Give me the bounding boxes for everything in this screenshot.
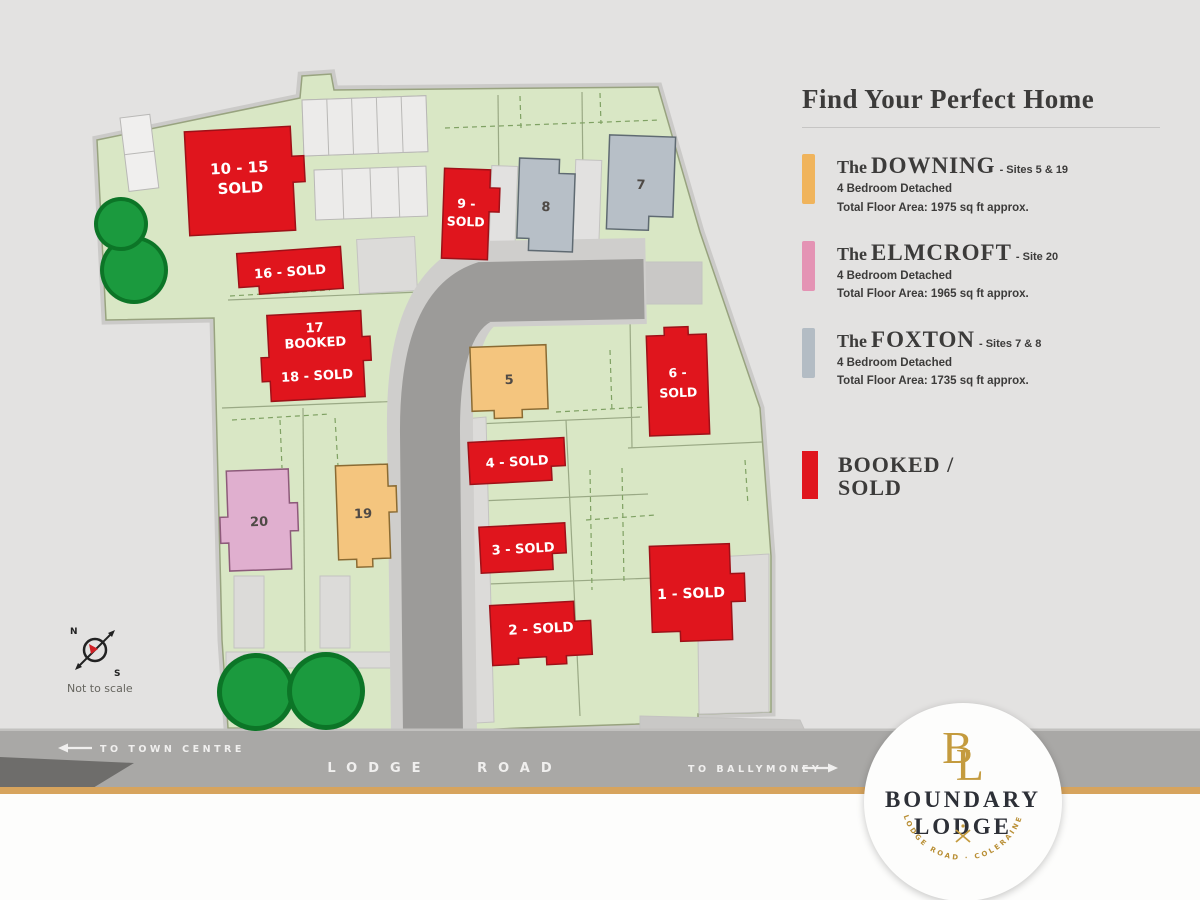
house-name: FOXTON (871, 327, 975, 352)
plot-label: 9 - (457, 196, 476, 212)
house-sites: - Sites 7 & 8 (979, 338, 1041, 350)
legend-item-foxton: The FOXTON - Sites 7 & 8 4 Bedroom Detac… (802, 328, 1164, 389)
tree (94, 197, 148, 251)
house-sites: - Site 20 (1016, 251, 1058, 263)
house-name-prefix: The (837, 244, 867, 264)
plot-6-house[interactable]: 6 - SOLD (646, 326, 710, 436)
svg-text:LODGE ROAD · COLERAINE: LODGE ROAD · COLERAINE (902, 814, 1025, 862)
plot-label: 20 (250, 515, 269, 531)
plot-label: 2 - SOLD (508, 619, 574, 638)
to-ballymoney-label: TO BALLYMONEY (688, 764, 822, 775)
plot-label: 19 (354, 507, 373, 523)
legend-item-elmcroft: The ELMCROFT - Site 20 4 Bedroom Detache… (802, 241, 1164, 302)
legend-item-downing: The DOWNING - Sites 5 & 19 4 Bedroom Det… (802, 154, 1164, 215)
house-area: Total Floor Area: 1735 sq ft approx. (837, 374, 1041, 388)
tree (287, 652, 365, 730)
legend-divider (802, 127, 1160, 128)
plot-label: SOLD (446, 213, 484, 229)
house-name-prefix: The (837, 157, 867, 177)
plot-label: 7 (636, 178, 646, 193)
house-area: Total Floor Area: 1965 sq ft approx. (837, 287, 1058, 301)
plot-label: 8 (541, 200, 551, 215)
plot-label: 5 (504, 373, 514, 388)
house-type-name: The ELMCROFT - Site 20 (837, 241, 1058, 265)
plot-4-house[interactable]: 4 - SOLD (468, 438, 566, 485)
house-type-name: The FOXTON - Sites 7 & 8 (837, 328, 1041, 352)
foxton-color-swatch (802, 328, 815, 378)
legend-title: Find Your Perfect Home (802, 84, 1164, 115)
site-plan-page: TO TOWN CENTRE LODGE ROAD TO BALLYMONEY … (0, 0, 1200, 900)
elmcroft-color-swatch (802, 241, 815, 291)
legend-panel: Find Your Perfect Home The DOWNING - Sit… (802, 84, 1164, 499)
sold-color-swatch (802, 451, 818, 499)
tree (217, 653, 295, 731)
plot-10-15-house[interactable]: 10 - 15 SOLD (184, 126, 307, 236)
house-name-prefix: The (837, 331, 867, 351)
not-to-scale-label: Not to scale (67, 682, 133, 695)
house-detail: 4 Bedroom Detached (837, 182, 1068, 196)
house-type-name: The DOWNING - Sites 5 & 19 (837, 154, 1068, 178)
house-detail: 4 Bedroom Detached (837, 356, 1041, 370)
plot-5-house[interactable]: 5 (470, 345, 548, 420)
plot-label: 6 - (668, 365, 687, 381)
plot-label: 1 - SOLD (657, 585, 725, 603)
plot-label: 10 - 15 (210, 158, 269, 179)
plot-label: 17 (305, 321, 324, 337)
to-town-centre-label: TO TOWN CENTRE (100, 744, 245, 755)
lodge-road-label: LODGE ROAD (327, 761, 562, 776)
house-sites: - Sites 5 & 19 (1000, 164, 1068, 176)
downing-color-swatch (802, 154, 815, 204)
house-detail: 4 Bedroom Detached (837, 269, 1058, 283)
compass-south-label: S (114, 669, 120, 679)
house-name: DOWNING (871, 153, 996, 178)
house-name: ELMCROFT (871, 240, 1012, 265)
house-area: Total Floor Area: 1975 sq ft approx. (837, 201, 1068, 215)
plot-7-house[interactable]: 7 (606, 135, 675, 231)
booked-label-line: BOOKED / (838, 453, 954, 476)
booked-sold-label: BOOKED / SOLD (838, 451, 954, 499)
logo-tagline: LODGE ROAD · COLERAINE (902, 814, 1025, 862)
plot-17-18-house[interactable]: 17 BOOKED 18 - SOLD (259, 310, 373, 402)
logo-ornament-icon (956, 824, 970, 842)
boundary-lodge-logo: BL BOUNDARY LODGE LODGE ROAD · COLERAINE (864, 703, 1062, 900)
sold-label-line: SOLD (838, 476, 954, 499)
plot-label: SOLD (659, 384, 697, 400)
plot-20-house[interactable]: 20 (218, 469, 299, 572)
plot-label: SOLD (217, 178, 263, 198)
compass-north-label: N (70, 627, 78, 637)
legend-item-booked-sold: BOOKED / SOLD (802, 451, 1164, 499)
